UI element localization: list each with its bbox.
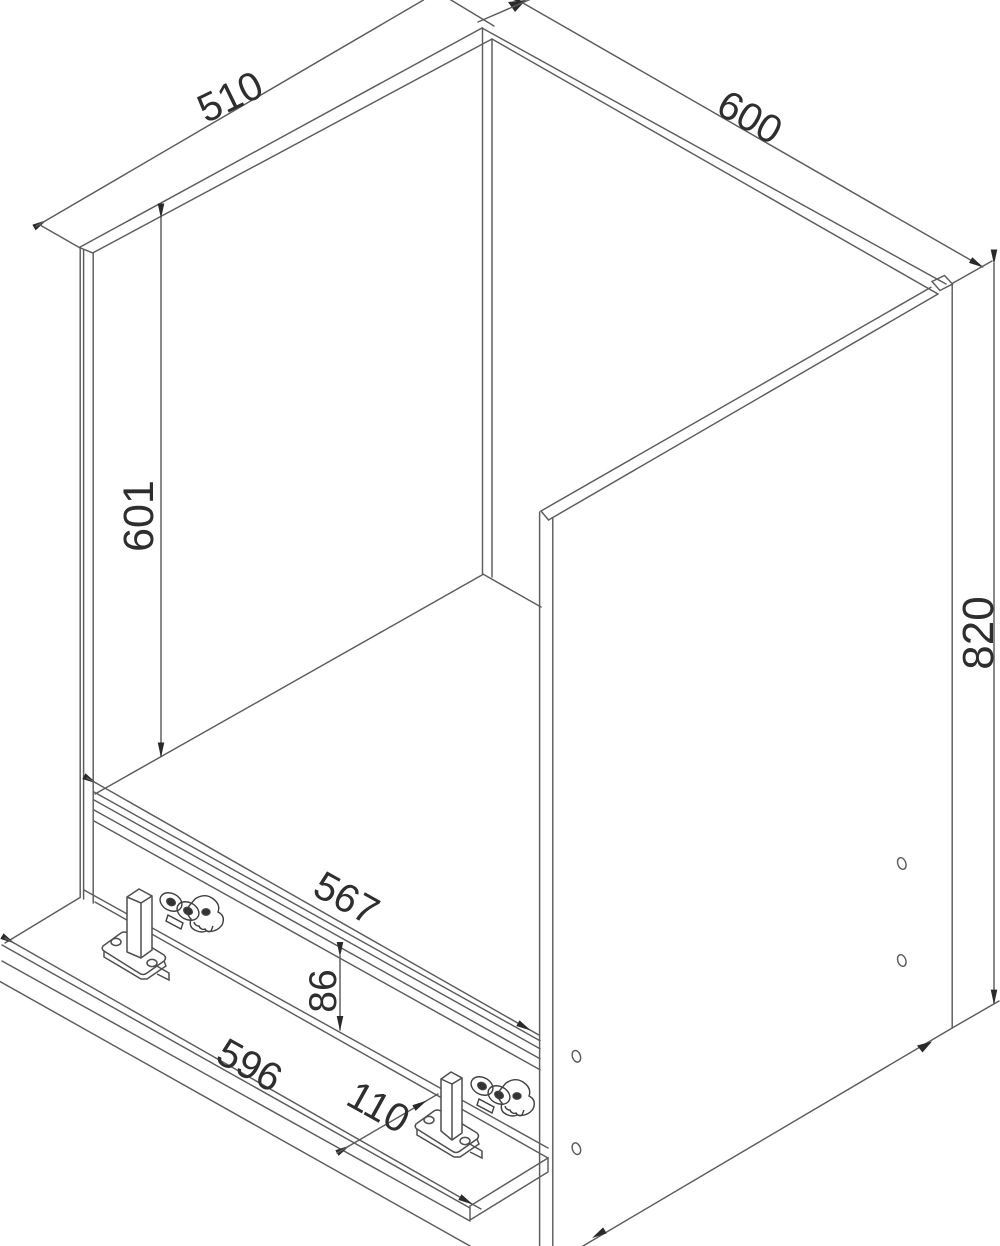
svg-text:567: 567 [306, 863, 386, 934]
svg-text:110: 110 [340, 1073, 417, 1142]
svg-text:600: 600 [710, 82, 790, 153]
svg-text:510: 510 [191, 63, 270, 132]
svg-text:820: 820 [954, 596, 1000, 669]
svg-text:596: 596 [209, 1030, 289, 1101]
svg-text:86: 86 [302, 969, 345, 1012]
svg-text:601: 601 [115, 480, 163, 552]
